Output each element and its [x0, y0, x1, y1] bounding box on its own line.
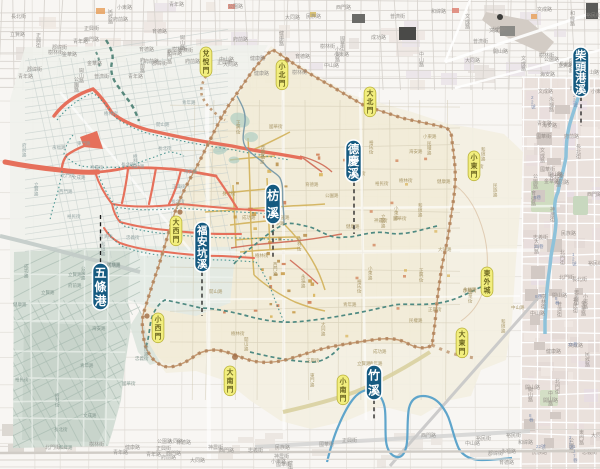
svg-text:北門街: 北門街 — [560, 249, 565, 267]
svg-text:和緯路: 和緯路 — [518, 439, 533, 446]
svg-text:神農街: 神農街 — [550, 206, 555, 224]
svg-text:開山路: 開山路 — [156, 121, 170, 128]
svg-text:小東路: 小東路 — [117, 4, 132, 11]
svg-text:普濟街: 普濟街 — [94, 73, 109, 80]
svg-text:裕民街: 裕民街 — [67, 213, 81, 220]
svg-text:裕民街: 裕民街 — [586, 12, 600, 19]
svg-text:民族路: 民族路 — [275, 444, 290, 451]
svg-text:西門路: 西門路 — [219, 447, 234, 454]
svg-text:小東路: 小東路 — [591, 88, 600, 95]
svg-text:立賢路: 立賢路 — [34, 181, 39, 197]
svg-text:育德路: 育德路 — [305, 181, 319, 188]
svg-text:府前路: 府前路 — [233, 36, 248, 43]
svg-text:海安路: 海安路 — [540, 71, 555, 78]
svg-text:開山路: 開山路 — [543, 397, 558, 404]
svg-text:大同路: 大同路 — [591, 432, 600, 439]
svg-text:育德路: 育德路 — [499, 459, 514, 466]
svg-text:正興街: 正興街 — [419, 268, 424, 283]
svg-text:郡緯街: 郡緯街 — [152, 60, 167, 67]
svg-text:開山路: 開山路 — [79, 68, 84, 85]
svg-text:西門路: 西門路 — [587, 191, 600, 198]
svg-text:北門街: 北門街 — [61, 172, 75, 179]
svg-text:中山路: 中山路 — [324, 62, 339, 69]
svg-text:裕民街: 裕民街 — [573, 297, 578, 315]
svg-text:青年路: 青年路 — [537, 120, 552, 127]
svg-text:青年路: 青年路 — [146, 451, 161, 458]
svg-text:立賢路: 立賢路 — [10, 31, 25, 38]
svg-text:開山路: 開山路 — [548, 171, 563, 178]
svg-text:立賢路: 立賢路 — [68, 271, 82, 278]
svg-text:海安路: 海安路 — [184, 168, 198, 175]
svg-text:府前路: 府前路 — [161, 454, 176, 461]
svg-text:海安路: 海安路 — [92, 325, 106, 332]
svg-text:健康路: 健康路 — [437, 178, 451, 185]
svg-text:樹林街: 樹林街 — [89, 441, 104, 448]
svg-text:西門路: 西門路 — [336, 4, 351, 11]
svg-text:忠義街: 忠義街 — [126, 234, 140, 241]
svg-text:小東路: 小東路 — [423, 133, 437, 140]
svg-text:柴頭港溪: 柴頭港溪 — [574, 48, 587, 96]
svg-text:樹林街: 樹林街 — [292, 69, 307, 76]
svg-text:青年路: 青年路 — [18, 73, 33, 80]
svg-text:正興街: 正興街 — [306, 357, 320, 364]
svg-text:大同路: 大同路 — [465, 57, 480, 64]
svg-text:健康路: 健康路 — [279, 30, 284, 48]
svg-text:健康路: 健康路 — [250, 55, 265, 62]
svg-text:金華路: 金華路 — [87, 60, 102, 67]
svg-text:普濟街: 普濟街 — [473, 38, 488, 45]
svg-text:健康路: 健康路 — [254, 70, 269, 77]
svg-text:正興街: 正興街 — [342, 437, 357, 444]
svg-text:開山路: 開山路 — [244, 337, 249, 352]
svg-text:大西門: 大西門 — [173, 218, 180, 244]
svg-text:普濟街: 普濟街 — [178, 47, 193, 54]
svg-text:大同路: 大同路 — [438, 246, 452, 253]
svg-text:兌悅門: 兌悅門 — [203, 49, 210, 75]
svg-text:西門路: 西門路 — [421, 432, 436, 439]
svg-text:民權路: 民權路 — [107, 261, 121, 268]
svg-text:民族路: 民族路 — [108, 9, 113, 26]
svg-text:大同路: 大同路 — [190, 457, 205, 464]
svg-text:小東路: 小東路 — [583, 293, 588, 311]
svg-text:健康路: 健康路 — [13, 301, 27, 308]
svg-text:小東路: 小東路 — [334, 51, 349, 58]
svg-text:郡緯街: 郡緯街 — [27, 66, 42, 73]
svg-text:育德路: 育德路 — [176, 439, 191, 446]
svg-text:北門街: 北門街 — [555, 378, 560, 396]
svg-text:公園路: 公園路 — [325, 192, 339, 199]
svg-text:長北街: 長北街 — [11, 13, 26, 20]
svg-text:長北街: 長北街 — [54, 426, 68, 433]
svg-text:民權路: 民權路 — [427, 141, 432, 156]
svg-text:成功路: 成功路 — [24, 263, 29, 279]
svg-text:忠義街: 忠義街 — [248, 447, 263, 454]
svg-text:公園路: 公園路 — [544, 56, 559, 63]
svg-text:小西門: 小西門 — [154, 315, 162, 341]
svg-text:永福路: 永福路 — [549, 96, 554, 114]
svg-text:樹林街: 樹林街 — [231, 330, 245, 337]
svg-text:郡緯街: 郡緯街 — [261, 144, 266, 160]
svg-text:和緯路: 和緯路 — [418, 202, 423, 218]
svg-text:西門路: 西門路 — [167, 49, 172, 66]
svg-text:文成路: 文成路 — [465, 13, 470, 31]
svg-text:府前路: 府前路 — [22, 142, 27, 158]
svg-text:成功路: 成功路 — [371, 34, 386, 41]
svg-text:東門路: 東門路 — [579, 429, 584, 447]
svg-text:西門路: 西門路 — [59, 188, 73, 195]
svg-text:大北門: 大北門 — [367, 89, 374, 115]
svg-text:國華街: 國華街 — [122, 380, 136, 387]
svg-text:忠義街: 忠義街 — [533, 234, 548, 241]
svg-text:22號: 22號 — [536, 443, 546, 450]
svg-text:國華街: 國華街 — [269, 123, 283, 130]
svg-text:正興街: 正興街 — [172, 183, 186, 190]
svg-text:裕民街: 裕民街 — [369, 139, 374, 155]
svg-text:國華街: 國華街 — [468, 289, 473, 304]
svg-text:文成路: 文成路 — [540, 147, 545, 165]
svg-text:樹林街: 樹林街 — [48, 49, 63, 56]
svg-text:永福路: 永福路 — [52, 144, 66, 151]
svg-text:北門街: 北門街 — [45, 444, 60, 451]
svg-text:竹溪: 竹溪 — [367, 367, 381, 397]
svg-text:開山路: 開山路 — [493, 48, 508, 55]
svg-text:公園路: 公園路 — [228, 3, 243, 10]
svg-text:正興街: 正興街 — [428, 306, 442, 313]
svg-text:文成路: 文成路 — [538, 88, 553, 95]
svg-text:公園路: 公園路 — [81, 266, 86, 281]
svg-text:育德路: 育德路 — [295, 53, 310, 60]
svg-text:育德路: 育德路 — [139, 46, 154, 53]
svg-text:長北街: 長北街 — [576, 144, 581, 161]
svg-text:長北街: 長北街 — [572, 276, 587, 283]
svg-text:青年路: 青年路 — [169, 1, 184, 8]
svg-text:府前路: 府前路 — [185, 58, 200, 65]
svg-text:西門路: 西門路 — [84, 36, 99, 43]
svg-text:開山路: 開山路 — [528, 387, 533, 404]
svg-text:青年路: 青年路 — [343, 301, 357, 308]
svg-text:民族路: 民族路 — [561, 230, 576, 237]
svg-text:青年路: 青年路 — [182, 99, 196, 106]
svg-text:福安坑溪: 福安坑溪 — [196, 224, 208, 271]
svg-text:民族路: 民族路 — [493, 183, 498, 198]
svg-text:正興街: 正興街 — [84, 25, 99, 32]
svg-text:長北街: 長北街 — [171, 198, 185, 205]
svg-text:裕民街: 裕民街 — [375, 180, 389, 187]
svg-text:樹林街: 樹林街 — [255, 252, 269, 259]
svg-text:和緯路: 和緯路 — [59, 444, 73, 451]
svg-text:樹林街: 樹林街 — [104, 110, 118, 117]
svg-text:小東門: 小東門 — [470, 153, 478, 179]
svg-text:神農街: 神農街 — [374, 217, 388, 224]
svg-text:裕民街: 裕民街 — [588, 260, 600, 267]
svg-text:大同路: 大同路 — [285, 14, 300, 21]
svg-text:中山路: 中山路 — [511, 304, 525, 311]
svg-text:國華街: 國華街 — [276, 461, 291, 468]
svg-text:長北街: 長北街 — [158, 145, 172, 152]
svg-text:東門路: 東門路 — [310, 372, 315, 388]
svg-text:樹林街: 樹林街 — [297, 236, 302, 252]
svg-text:和緯路: 和緯路 — [481, 146, 486, 162]
svg-text:國華街: 國華街 — [319, 441, 334, 448]
svg-text:普濟街: 普濟街 — [390, 13, 405, 20]
svg-text:青年路: 青年路 — [80, 362, 94, 369]
svg-text:中山路: 中山路 — [219, 56, 234, 63]
svg-text:青年路: 青年路 — [113, 449, 128, 456]
svg-text:德慶溪: 德慶溪 — [347, 142, 360, 181]
svg-text:裕民街: 裕民街 — [15, 376, 29, 383]
svg-text:樹林街: 樹林街 — [55, 392, 60, 408]
svg-text:正興街: 正興街 — [236, 120, 241, 135]
svg-text:文成路: 文成路 — [537, 6, 552, 13]
svg-text:成功路: 成功路 — [373, 348, 387, 355]
svg-text:國華街: 國華街 — [536, 133, 551, 140]
svg-text:育德路: 育德路 — [152, 28, 167, 35]
svg-text:五條港: 五條港 — [94, 266, 107, 308]
svg-text:8巷: 8巷 — [535, 294, 543, 299]
svg-text:北門街: 北門街 — [559, 274, 574, 281]
svg-text:正興街: 正興街 — [156, 445, 171, 452]
svg-text:永福路: 永福路 — [301, 273, 306, 289]
svg-text:開山路: 開山路 — [209, 288, 223, 295]
svg-text:8巷: 8巷 — [534, 195, 542, 200]
svg-text:大東門: 大東門 — [458, 330, 466, 356]
svg-text:公園路: 公園路 — [533, 174, 538, 191]
svg-text:府前路: 府前路 — [68, 282, 82, 289]
svg-text:北門街: 北門街 — [492, 26, 507, 33]
svg-text:和緯路: 和緯路 — [431, 8, 446, 15]
svg-text:裕民街: 裕民街 — [357, 278, 362, 294]
svg-text:國華街: 國華街 — [340, 36, 345, 53]
svg-text:樹林街: 樹林街 — [399, 177, 413, 184]
svg-text:立賢路: 立賢路 — [41, 289, 55, 296]
svg-text:小東路: 小東路 — [394, 205, 399, 221]
svg-text:大南門: 大南門 — [227, 368, 234, 394]
svg-text:成功路: 成功路 — [131, 163, 145, 170]
svg-text:文成路: 文成路 — [83, 412, 97, 419]
svg-text:健康路: 健康路 — [346, 223, 360, 230]
svg-text:府前路: 府前路 — [140, 57, 145, 75]
svg-text:府前路: 府前路 — [113, 16, 128, 23]
svg-text:西門路: 西門路 — [273, 262, 278, 277]
svg-text:東門路: 東門路 — [77, 140, 91, 147]
svg-text:和緯路: 和緯路 — [501, 318, 506, 334]
svg-text:小南門: 小南門 — [339, 377, 347, 403]
svg-text:民族路: 民族路 — [585, 352, 590, 369]
svg-text:文成路: 文成路 — [144, 341, 149, 357]
svg-text:和緯路: 和緯路 — [570, 10, 575, 28]
svg-text:神農街: 神農街 — [90, 164, 104, 171]
svg-text:裕民街: 裕民街 — [476, 435, 491, 442]
svg-text:中山路: 中山路 — [419, 51, 424, 69]
svg-text:中山路: 中山路 — [530, 310, 545, 317]
svg-text:永福路: 永福路 — [501, 448, 516, 455]
svg-text:金華路: 金華路 — [62, 51, 77, 58]
svg-text:海安路: 海安路 — [409, 148, 423, 155]
svg-text:大同路: 大同路 — [321, 321, 326, 337]
svg-text:小北門: 小北門 — [278, 62, 286, 88]
svg-text:民族路: 民族路 — [306, 13, 321, 20]
svg-text:東外城: 東外城 — [483, 269, 491, 295]
svg-text:正興街: 正興街 — [36, 33, 41, 50]
svg-text:府前路: 府前路 — [564, 133, 579, 140]
svg-text:裕民街: 裕民街 — [506, 432, 521, 439]
svg-text:成功路: 成功路 — [242, 214, 256, 221]
svg-text:和緯路: 和緯路 — [101, 241, 106, 257]
svg-text:長北街: 長北街 — [222, 190, 236, 197]
svg-text:35巷: 35巷 — [534, 244, 544, 249]
svg-text:文成路: 文成路 — [521, 55, 526, 73]
svg-text:35巷: 35巷 — [568, 342, 578, 347]
svg-text:民權路: 民權路 — [409, 317, 423, 324]
svg-text:健康路: 健康路 — [546, 348, 561, 355]
svg-text:神農街: 神農街 — [274, 453, 289, 460]
svg-text:小東路: 小東路 — [368, 265, 373, 281]
svg-text:樹林街: 樹林街 — [320, 43, 335, 50]
